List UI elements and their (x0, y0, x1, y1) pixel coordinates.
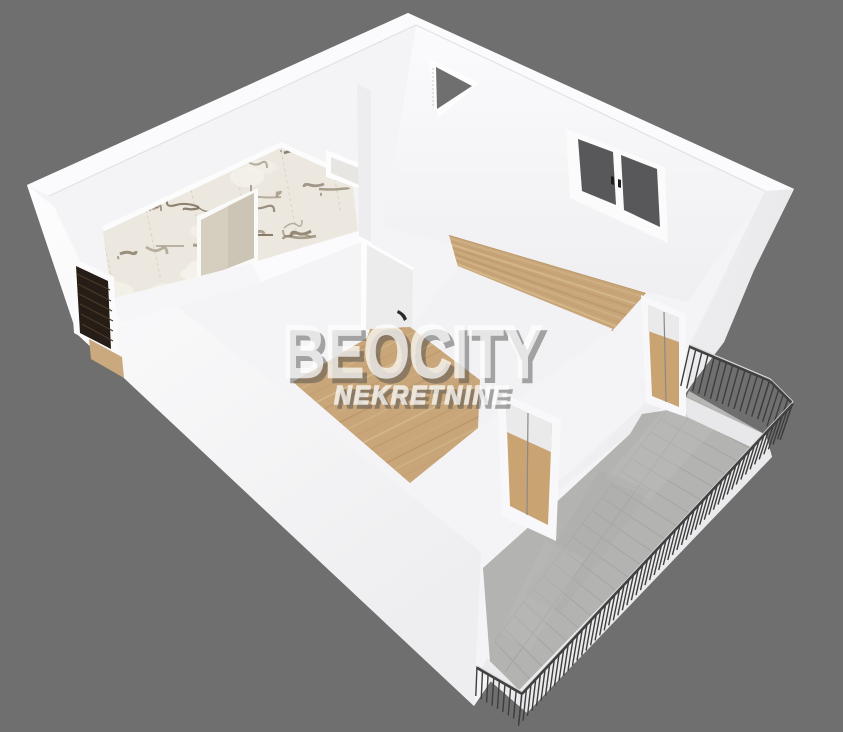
svg-text:NEKRETNINE: NEKRETNINE (334, 381, 510, 410)
